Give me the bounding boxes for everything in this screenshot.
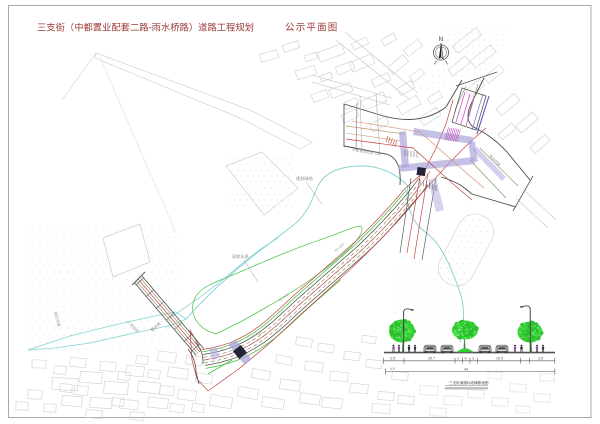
svg-text:10.7: 10.7 — [428, 357, 435, 361]
svg-text:三支街（中都置业配套二路-雨水桥路）道路工程规划: 三支街（中都置业配套二路-雨水桥路）道路工程规划 — [37, 22, 254, 33]
svg-text:规划绿地: 规划绿地 — [296, 175, 314, 182]
svg-text:N: N — [439, 37, 443, 43]
svg-text:4: 4 — [465, 357, 467, 361]
svg-text:3.5: 3.5 — [390, 357, 395, 361]
svg-text:1: 1 — [472, 357, 474, 361]
svg-text:10.5: 10.5 — [496, 357, 503, 361]
svg-text:现状水系: 现状水系 — [232, 253, 249, 260]
svg-text:三支街道路标准横断面图: 三支街道路标准横断面图 — [449, 380, 489, 385]
svg-text:4.5: 4.5 — [390, 367, 395, 371]
svg-text:1: 1 — [457, 357, 459, 361]
svg-text:公示平面图: 公示平面图 — [285, 23, 339, 34]
svg-text:44: 44 — [464, 367, 468, 371]
svg-text:3.5: 3.5 — [538, 357, 543, 361]
